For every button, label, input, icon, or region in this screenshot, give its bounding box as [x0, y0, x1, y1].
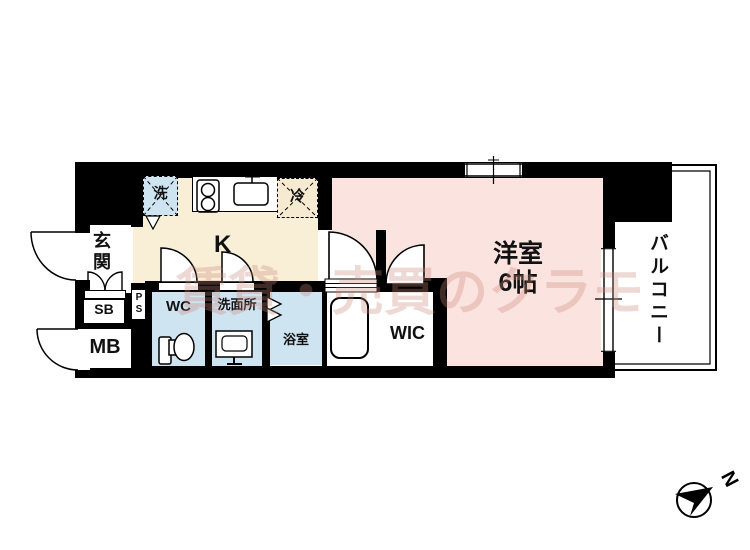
toilet-icon [159, 334, 194, 365]
stove-icon [197, 180, 219, 212]
kitchen-label: K [214, 233, 231, 257]
bathroom-folding-door-icon [267, 297, 281, 322]
toilet-door-arc [161, 248, 197, 282]
washer-notch [146, 216, 160, 229]
shoebox-label: SB [84, 302, 124, 316]
floorplan-linework: N [0, 0, 750, 550]
compass: N [675, 468, 742, 517]
entrance-label: 玄関 [92, 231, 110, 273]
meterbox-label: MB [80, 337, 130, 357]
pipespace-label: PS [134, 292, 144, 316]
washroom-label: 洗面所 [209, 298, 265, 311]
western-door-step [325, 279, 377, 292]
bathroom-label: 浴室 [270, 333, 322, 346]
meterbox-door-arc [37, 329, 78, 370]
compass-north-label: N [716, 468, 742, 491]
washbasin-icon [216, 331, 252, 364]
floorplan: N 玄関 K 洗 冷 洋室 6帖 バルコニー WIC WC 洗面所 浴室 SB … [0, 0, 750, 550]
window-balcony [595, 248, 622, 352]
washer-label: 洗 [143, 186, 178, 200]
shoebox-door-arcs [88, 272, 122, 291]
toilet-label: WC [152, 299, 205, 314]
fridge-label: 冷 [277, 189, 318, 204]
sink-icon [234, 176, 268, 205]
window-top [465, 156, 522, 184]
wic-door-arc [386, 245, 424, 284]
entrance-door-arc [31, 232, 76, 280]
western-room-name: 洋室 [493, 240, 543, 268]
western-room-label: 洋室 6帖 [468, 240, 568, 298]
balcony-label: バルコニー [648, 233, 667, 348]
wic-label: WIC [382, 324, 433, 342]
western-room-door-arc [329, 232, 377, 281]
bathtub-icon [331, 298, 368, 358]
western-room-size: 6帖 [499, 269, 538, 297]
